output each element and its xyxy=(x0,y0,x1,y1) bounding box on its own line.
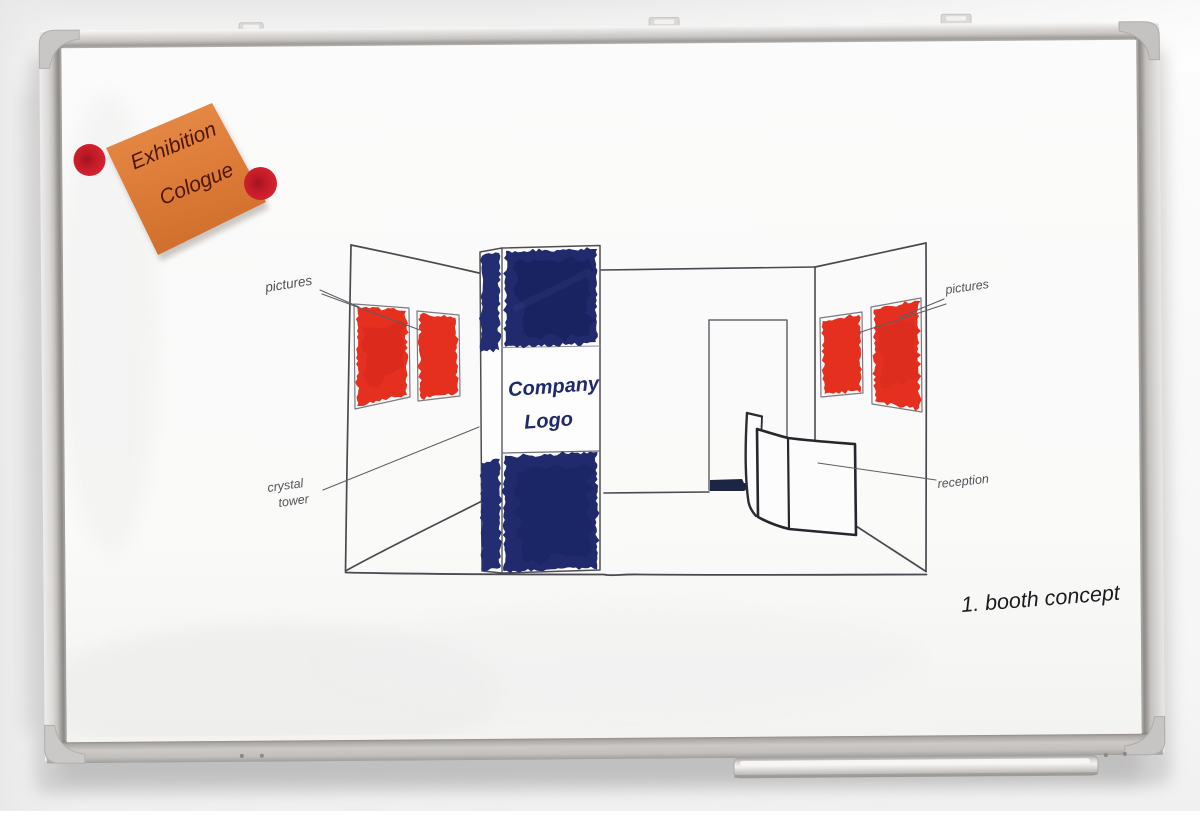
svg-text:Logo: Logo xyxy=(523,408,573,433)
